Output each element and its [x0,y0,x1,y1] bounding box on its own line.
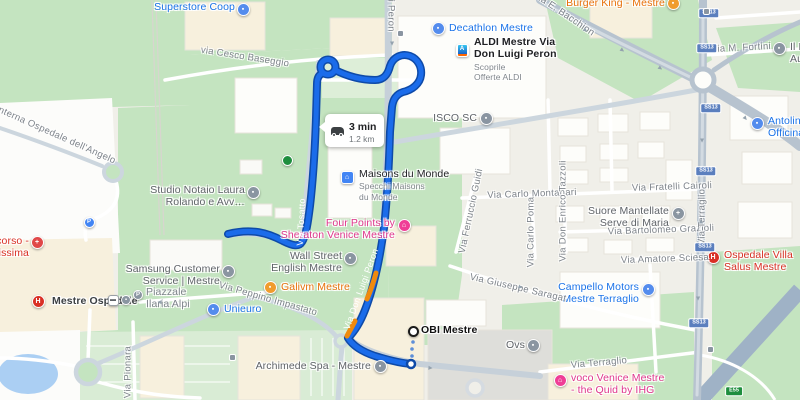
street-label-7: Via Don Enrico Tazzoli [558,160,569,261]
samsung-service-icon[interactable]: ▪ [222,265,235,278]
burger-king-icon[interactable]: ▪ [667,0,680,10]
aldi-label[interactable]: ALDI Mestre ViaDon Luigi PeronScoprileOf… [474,36,557,82]
studio-notaio-icon[interactable]: ▪ [247,186,260,199]
road-shield-ss13: SS13 [695,166,716,176]
unieuro-icon[interactable]: ▪ [207,303,220,316]
street-label-1: Viabilità Interna Ospedale dell'Angelo [0,88,117,167]
pronto-soccorso-icon[interactable]: + [31,236,44,249]
street-label-16: Via Pionara [123,346,134,398]
tram-stop-icon[interactable]: ▬ [108,295,119,306]
voco-venice-label[interactable]: voco Venice Mestre- the Quid by IHG [571,372,664,397]
suore-mantellate-icon[interactable]: + [672,207,685,220]
road-shield-ss13: SS13 [700,103,721,113]
road-arrow-icon: ▲ [740,113,750,123]
road-arrow-icon: ▲ [426,364,434,372]
il-f-label[interactable]: Il F…Aut… [790,41,800,66]
street-label-13: Via Terraglio [570,355,627,371]
superstore-coop-icon[interactable]: ▪ [237,3,250,16]
car-icon [331,127,344,135]
route-info-bubble[interactable]: 3 min 1.2 km [325,114,384,147]
antolini-label[interactable]: Antolini Srl…Officina Au… [768,115,800,140]
street-label-0: via Cesco Baseggio [200,45,290,70]
unieuro-label[interactable]: Unieuro [224,303,261,315]
aldi-icon[interactable]: A [456,44,469,57]
traffic-signal-icon [703,8,710,15]
park-poi-icon[interactable] [282,155,293,166]
campello-motors-icon[interactable]: ▪ [642,283,655,296]
pronto-soccorso-label[interactable]: occorso -tenissima [0,235,29,260]
street-label-9: Via Ferruccio Guidi [457,168,486,255]
obi-mestre-icon[interactable] [408,326,419,337]
road-arrow-icon: ▲ [698,219,705,226]
ospedale-villa-salus-label[interactable]: Ospedale VillaSalus Mestre [724,249,793,274]
station-secondary-icon[interactable]: ▪ [121,295,131,305]
traffic-signal-icon [707,346,714,353]
road-shield-ss13: SS13 [694,242,715,252]
ovs-icon[interactable]: ▪ [527,339,540,352]
galivm-label[interactable]: Galivm Mestre [281,281,350,293]
street-label-8: Via Carlo Poma [526,197,537,268]
samsung-service-label[interactable]: Samsung CustomerService | Mestre [126,263,220,288]
wall-street-english-icon[interactable]: ▪ [344,252,357,265]
archimede-spa-icon[interactable]: ▪ [374,360,387,373]
maisons-du-monde-label[interactable]: Maisons du MondeSpecchi Maisonsdu Monde [359,168,449,202]
four-points-sheraton-icon[interactable]: ⌂ [398,219,411,232]
road-arrow-icon: ▲ [389,40,396,47]
maisons-du-monde-icon[interactable]: ⌂ [341,171,354,184]
route-duration: 3 min [349,121,376,133]
station-parking-icon[interactable]: P [133,290,143,300]
archimede-spa-label[interactable]: Archimede Spa - Mestre [256,360,371,372]
street-label-12: Via Terraglio [697,189,708,245]
road-arrow-icon: ▲ [699,137,706,144]
road-shield-e55: E55 [725,386,743,396]
decathlon-label[interactable]: Decathlon Mestre [449,22,533,34]
antolini-icon[interactable]: ▪ [751,117,764,130]
route-distance: 1.2 km [349,135,376,144]
il-f-icon[interactable]: ▪ [773,42,786,55]
isco-sc-icon[interactable]: ▪ [480,112,493,125]
street-label-4: Via M. Fortini [711,41,771,55]
road-shield-ss13: SS13 [696,43,717,53]
road-arrow-icon: ▲ [617,45,627,55]
road-arrow-icon: ▲ [655,63,665,73]
street-label-2: gi Peron [386,0,397,32]
road-arrow-icon: ▲ [156,298,164,306]
decathlon-icon[interactable]: ▪ [432,22,445,35]
mestre-ospedale-icon[interactable]: H [32,295,45,308]
voco-venice-icon[interactable]: ⌂ [554,374,567,387]
road-arrow-icon: ▲ [695,295,702,302]
burger-king-label[interactable]: Burger King - Mestre [566,0,665,9]
studio-notaio-label[interactable]: Studio Notaio LauraRolando e Avv… [150,184,245,209]
map-canvas[interactable]: ▪Superstore Coop▪Burger King - Mestre▪De… [0,0,800,400]
campello-motors-label[interactable]: Campello MotorsMestre Terraglio [558,281,639,306]
parking-icon[interactable]: P [84,217,95,228]
isco-sc-label[interactable]: ISCO SC [433,112,477,124]
street-label-11: Via Amatore Sciesa [621,252,709,266]
superstore-coop-label[interactable]: Superstore Coop [154,1,235,13]
road-shield-ss13: SS13 [688,318,709,328]
obi-mestre-label[interactable]: OBI Mestre [421,324,477,336]
piazzale-ilaria-alpi-label[interactable]: PiazzaleIlaria Alpi [146,286,190,311]
traffic-signal-icon [397,30,404,37]
labels-layer: ▪Superstore Coop▪Burger King - Mestre▪De… [0,0,800,400]
ovs-label[interactable]: Ovs [506,339,525,351]
traffic-signal-icon [229,354,236,361]
wall-street-english-label[interactable]: Wall StreetEnglish Mestre [271,250,342,275]
